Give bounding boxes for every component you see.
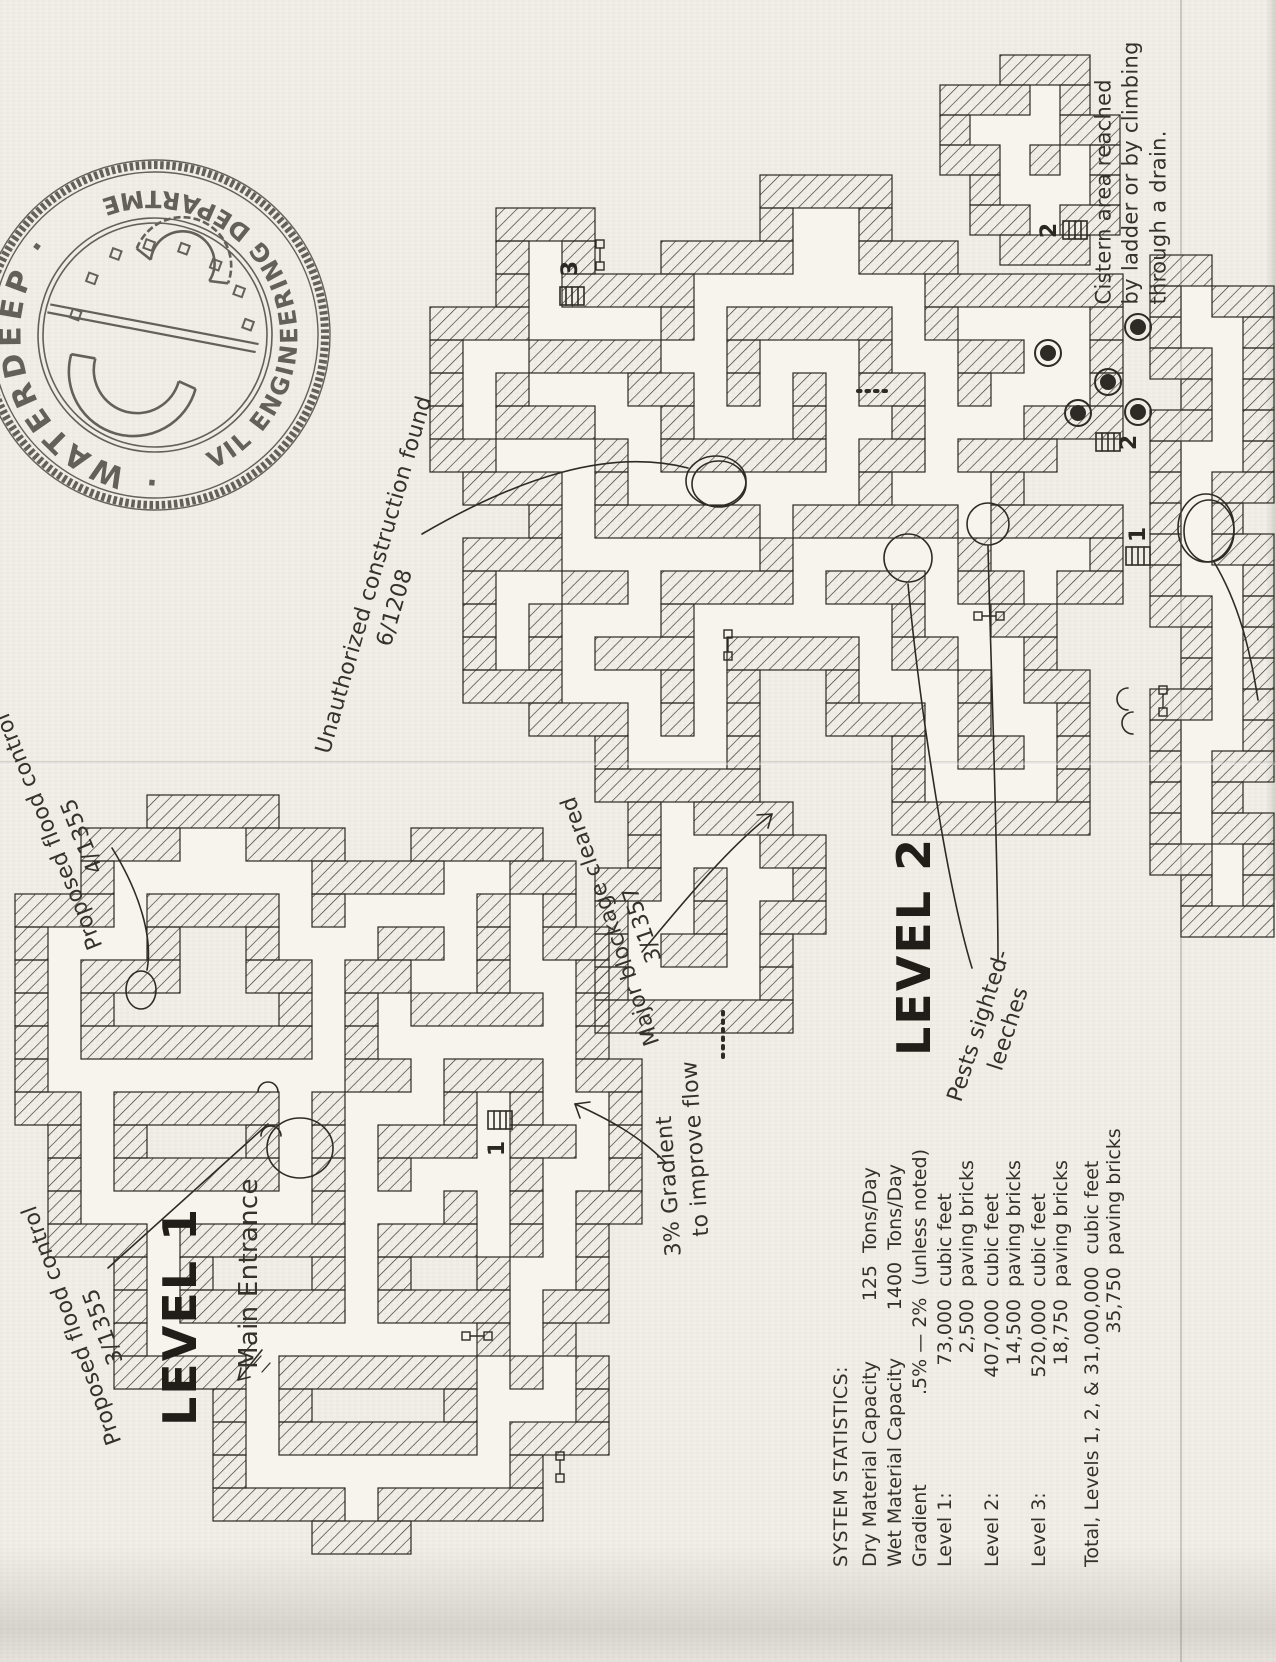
pests-circled-area-2 [967, 503, 1009, 545]
fold-crease-vertical [1180, 0, 1182, 1662]
scanned-sewer-map-page: · WATERDEEP · CIVIL ENGINEERING DEPARTME… [0, 0, 1276, 1662]
arch-icon-3 [1117, 688, 1128, 710]
door-icon [462, 1332, 492, 1340]
system-statistics-table: SYSTEM STATISTICS: Dry Material Capacity… [830, 1137, 1140, 1567]
marker-l3-ladder2: 2 [1037, 223, 1062, 238]
svg-text:CIVIL ENGINEERING DEPARTMENT: CIVIL ENGINEERING DEPARTMENT [71, 135, 354, 483]
stats-row-level2: Level 2: 407,000cubic feet 14,500paving … [981, 1137, 1025, 1567]
marker-l2-ladder3: 3 [558, 261, 583, 276]
drain-circled-area2 [1184, 500, 1234, 562]
pests-arrow-line-2 [988, 546, 998, 962]
well-icon [1035, 340, 1061, 366]
ladder-icon-l1-1 [488, 1111, 512, 1129]
flood4-circled-area [126, 971, 156, 1009]
stats-row-gradient: Gradient .5% — 2%(unless noted) [909, 1137, 931, 1567]
door-icon [1159, 686, 1167, 716]
stats-row-level1: Level 1: 73,000cubic feet 2,500paving br… [934, 1137, 978, 1567]
ladder-icon-l2-1 [1126, 547, 1150, 565]
door-icon [596, 240, 604, 270]
well-icon [1065, 400, 1091, 426]
stats-title: SYSTEM STATISTICS: [830, 1137, 852, 1567]
stats-row-level3: Level 3: 520,000cubic feet 18,750paving … [1028, 1137, 1072, 1567]
blockage-arrow-line [642, 814, 772, 952]
drain-leader-line [1214, 562, 1258, 700]
door-icon [724, 630, 732, 660]
page-edge-shading [1266, 0, 1276, 900]
annotation-cistern-note: Cistern area reached by ladder or by cli… [1091, 40, 1183, 305]
ladder-icon-l3-2 [1063, 221, 1087, 239]
marker-l2-ladder1: 1 [1126, 527, 1151, 542]
ladder-icon-l2-3 [560, 287, 584, 305]
level2-title: LEVEL 2 [887, 856, 941, 1056]
unauthorized-arrow-line [422, 462, 688, 534]
arch-icon-4 [1122, 712, 1133, 734]
well-icon [1095, 369, 1121, 395]
main-entrance-label: Main Entrance [233, 1199, 267, 1369]
level1-title: LEVEL 1 [153, 1226, 207, 1426]
well-icon [1125, 314, 1151, 340]
door-icon [556, 1452, 564, 1482]
unauthorized-circled-area2 [692, 461, 746, 507]
pests-circled-area-1 [884, 534, 932, 582]
marker-l2-ladder2: 2 [1117, 435, 1142, 450]
drain-circled-area [1178, 494, 1234, 562]
unauthorized-circled-area [686, 456, 746, 506]
arch-icon-1 [258, 1082, 278, 1092]
well-icons [1035, 314, 1151, 426]
bottom-fold-shadow [0, 1545, 1276, 1662]
stats-row-dry: Dry Material Capacity 125Tons/Day [859, 1137, 881, 1567]
stats-row-wet: Wet Material Capacity 1400Tons/Day [884, 1137, 906, 1567]
well-icon [1125, 399, 1151, 425]
stats-row-total: Total, Levels 1, 2, & 3 1,000,000cubic f… [1081, 1137, 1125, 1567]
stamp-dept-text: CIVIL ENGINEERING DEPARTMENT [71, 135, 354, 483]
marker-l1-ladder1: 1 [485, 1141, 510, 1156]
